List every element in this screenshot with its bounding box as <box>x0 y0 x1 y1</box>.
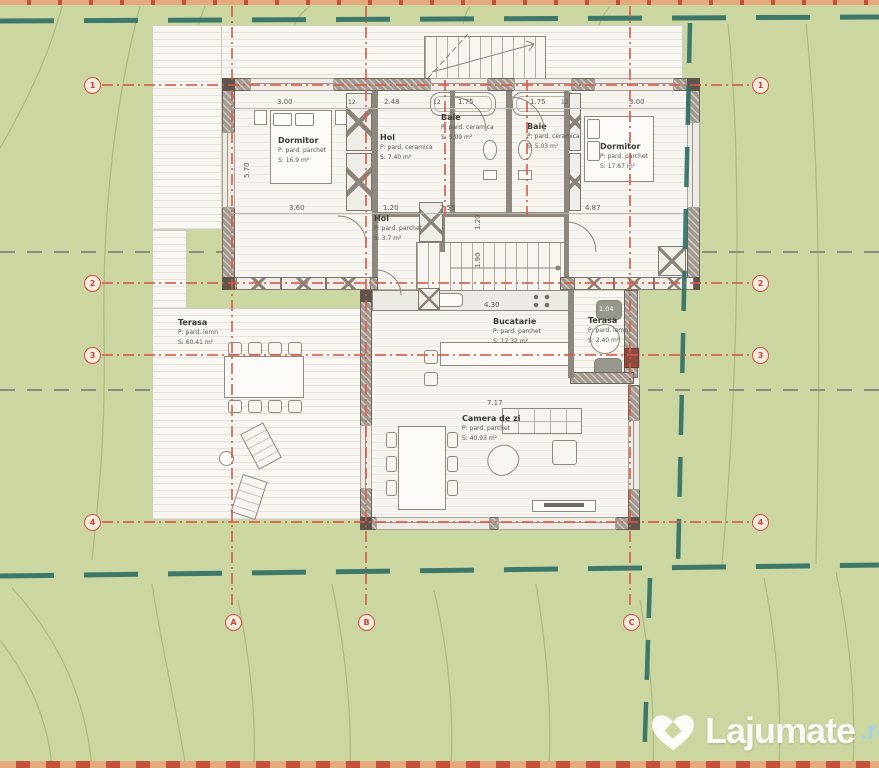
dim-label: 4.87 <box>585 204 601 212</box>
chair <box>248 400 262 413</box>
chair <box>268 400 282 413</box>
dim-label: 2.48 <box>384 98 400 106</box>
wall-terrace-bottom <box>570 372 634 384</box>
dim-label: 7.17 <box>487 399 503 407</box>
dim-label: 1.90 <box>474 252 482 268</box>
grid-line-row-3 <box>102 354 752 356</box>
site-plan-canvas: 3.00 12 2.48 12 1.75 1.75 12 3.00 3.60 1… <box>0 0 879 768</box>
interior-stairs <box>416 242 568 294</box>
chair <box>386 480 397 496</box>
deck-left-narrow <box>152 230 187 310</box>
iwall-baie1-baie2 <box>506 91 512 215</box>
bar-stool <box>424 350 438 364</box>
grid-line-row-4 <box>102 521 752 523</box>
window-left-wall <box>222 132 235 208</box>
room-label-baie-1: Baie P: pard. ceramica S: 5.09 m² <box>441 113 494 142</box>
dim-label: 1.20 <box>474 214 482 230</box>
tv <box>544 503 584 507</box>
pillow <box>295 113 314 126</box>
dim-label: 2.55 <box>440 204 456 212</box>
deck-left-strip <box>152 25 222 230</box>
room-label-hol-sus: Hol P: pard. ceramica S: 7.40 m² <box>380 133 433 162</box>
chair <box>386 432 397 448</box>
room-label-bucatarie: Bucatarie P: pard. parchet S: 12.32 m² <box>493 317 541 346</box>
grid-bubble-row-1-left: 1 <box>84 77 101 94</box>
grid-bubble-col-a: A <box>225 614 242 631</box>
dim-label: 1.04 <box>599 305 613 313</box>
dimension-line <box>232 108 692 109</box>
dim-label: 3.60 <box>289 204 305 212</box>
dim-label: 5.70 <box>243 162 251 178</box>
pillow <box>273 113 292 126</box>
chair <box>447 456 458 472</box>
grid-bubble-row-3-left: 3 <box>84 347 101 364</box>
dim-label: 1.75 <box>530 98 546 106</box>
grid-bubble-col-c: C <box>623 614 640 631</box>
chair <box>386 456 397 472</box>
chair <box>288 400 302 413</box>
chair <box>447 480 458 496</box>
grid-bubble-row-4-right: 4 <box>752 514 769 531</box>
axis-line-baie2 <box>526 80 528 215</box>
room-label-hol-jos: Hol P: pard. parchet S: 3.7 m² <box>374 214 422 243</box>
exterior-stairs <box>424 36 546 80</box>
dim-label: 1.20 <box>383 204 399 212</box>
dim-label: 3.00 <box>629 98 645 106</box>
window-living-south-2 <box>498 517 616 530</box>
watermark-tld: .ro <box>860 717 879 746</box>
iwall-hol-baie1 <box>450 91 455 215</box>
watermark: Lajumate .ro <box>646 710 879 752</box>
pillow <box>587 119 600 139</box>
grid-bubble-row-3-right: 3 <box>752 347 769 364</box>
chair <box>447 432 458 448</box>
dim-label: 12 <box>433 99 441 106</box>
kitchen-sink <box>437 293 463 307</box>
lajumate-logo-icon <box>646 710 700 752</box>
watermark-name: Lajumate <box>705 710 855 752</box>
bar-stool <box>424 372 438 386</box>
sink-1 <box>483 170 497 180</box>
grid-bubble-row-4-left: 4 <box>84 514 101 531</box>
axis-line-baie1 <box>444 80 446 215</box>
room-label-terasa-left: Terasa P: pard. lemn S: 60.41 m² <box>178 318 218 347</box>
grid-line-col-c <box>629 6 631 608</box>
nightstand <box>254 110 267 125</box>
room-label-dormitor-right: Dormitor P: pard. parchet S: 17.67 m² <box>600 142 648 171</box>
dining-table-living <box>398 426 446 510</box>
window-living-south-1 <box>376 517 490 530</box>
grid-line-col-b <box>365 6 367 608</box>
grid-bubble-col-b: B <box>358 614 375 631</box>
terrace-dining-table <box>224 356 304 398</box>
room-label-camera-zi: Camera de zi P: pard. parchet S: 40.93 m… <box>462 414 521 443</box>
dim-label: 3.00 <box>277 98 293 106</box>
dimension-line <box>232 213 687 214</box>
grid-line-col-a <box>231 6 233 608</box>
dim-label: 4.30 <box>484 301 500 309</box>
window-right-wall <box>687 122 700 208</box>
room-label-dormitor-left: Dormitor P: pard. parchet S: 16.9 m² <box>278 136 326 165</box>
grid-bubble-row-1-right: 1 <box>752 77 769 94</box>
grid-line-row-1 <box>102 84 752 86</box>
dim-label: 12 <box>348 99 356 106</box>
pillow <box>587 141 600 161</box>
grid-bubble-row-2-right: 2 <box>752 275 769 292</box>
dim-label: 12 <box>561 99 569 106</box>
closet-hatch <box>658 246 686 276</box>
dim-label: 1.75 <box>458 98 474 106</box>
fence-line-bottom <box>0 761 879 768</box>
iwall-kitchen-terrace <box>568 290 574 378</box>
wardrobe-hatch <box>569 153 581 211</box>
room-label-terasa-right: Terasa P: pard. lemn S: 2.40 m² <box>588 316 628 345</box>
grid-bubble-row-2-left: 2 <box>84 275 101 292</box>
room-label-baie-2: Baie P: pard. ceramica S: 5.03 m² <box>527 122 580 151</box>
grid-line-row-2 <box>102 282 752 284</box>
wardrobe-hatch <box>346 153 372 211</box>
fence-line-top <box>0 0 879 5</box>
chimney-block <box>624 348 639 368</box>
pouf <box>552 440 577 465</box>
toilet-1 <box>483 140 497 160</box>
shaft-hatch <box>418 288 440 310</box>
iwall-bedroomleft-hol <box>372 91 378 277</box>
stove-burners <box>530 292 554 310</box>
sink-2 <box>518 170 532 180</box>
